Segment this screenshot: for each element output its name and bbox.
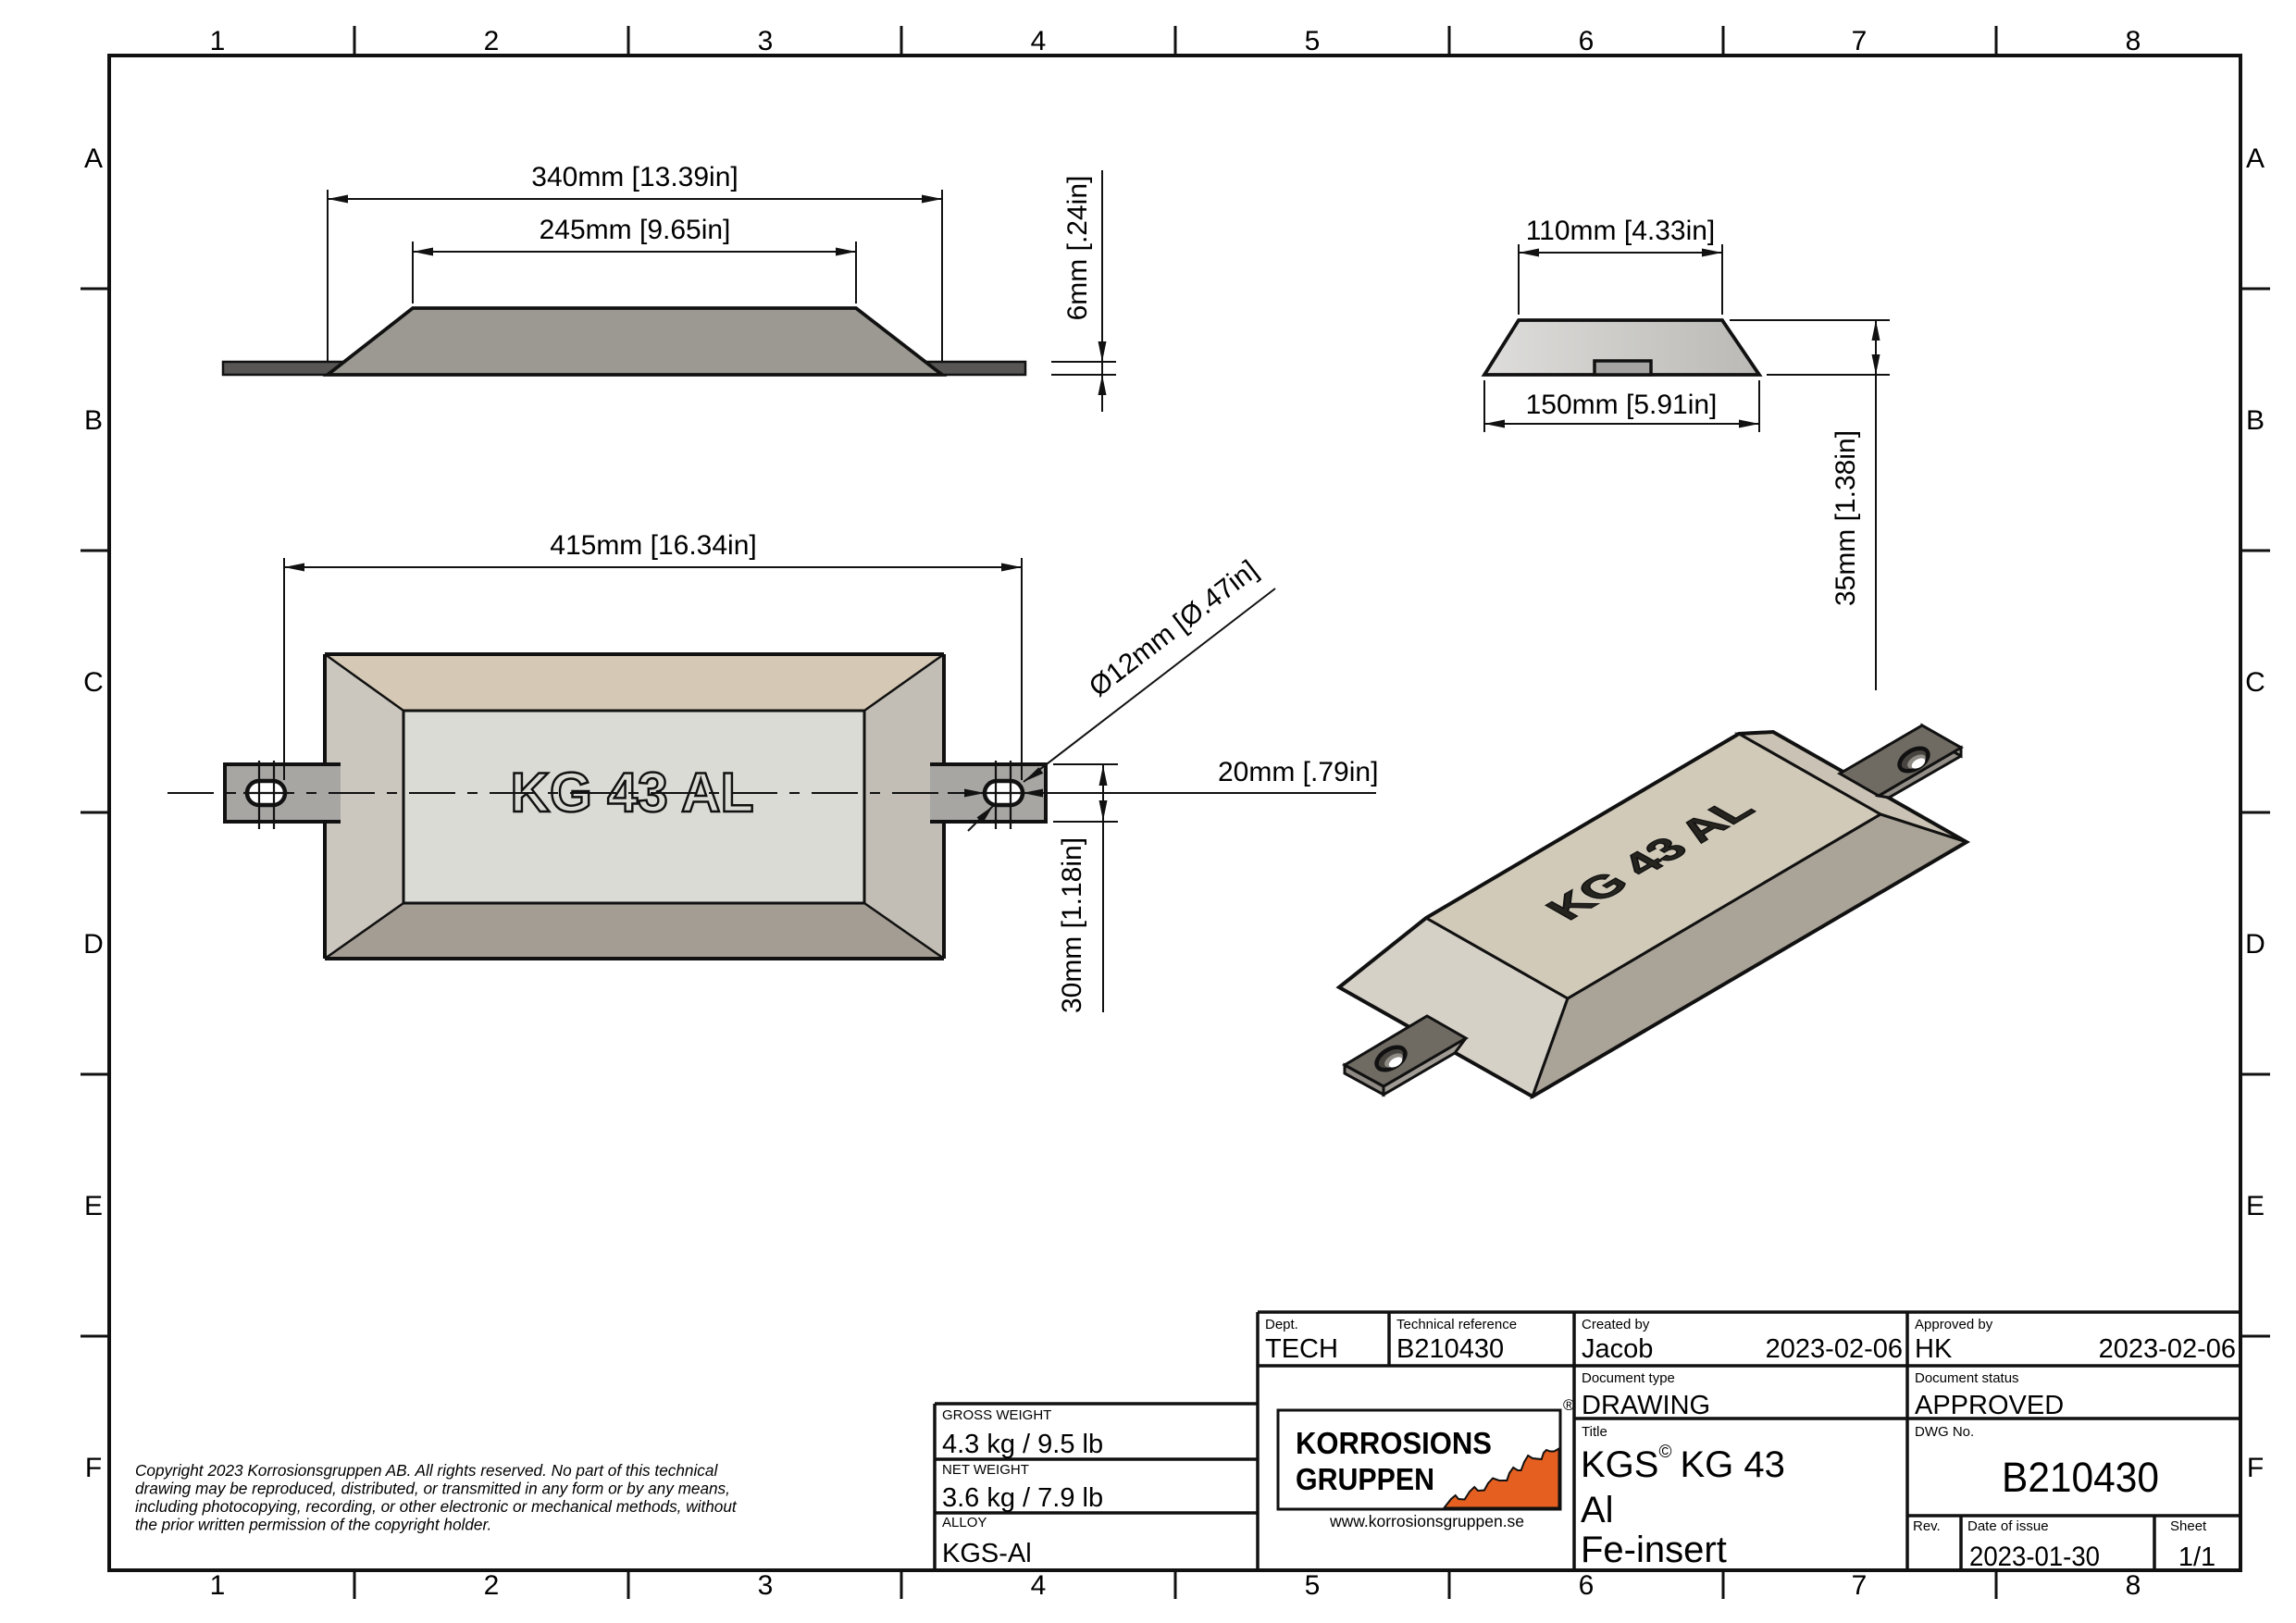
svg-text:2023-02-06: 2023-02-06	[2099, 1334, 2236, 1364]
svg-text:E: E	[84, 1191, 103, 1221]
svg-text:30mm [1.18in]: 30mm [1.18in]	[1057, 837, 1087, 1013]
svg-text:B210430: B210430	[1396, 1334, 1504, 1364]
svg-text:ALLOY: ALLOY	[942, 1515, 987, 1530]
svg-text:3: 3	[758, 1570, 774, 1601]
svg-text:C: C	[2245, 667, 2265, 698]
svg-text:HK: HK	[1915, 1334, 1953, 1364]
svg-text:®: ®	[1563, 1396, 1575, 1414]
svg-text:1/1: 1/1	[2178, 1542, 2215, 1572]
svg-text:Rev.: Rev.	[1913, 1518, 1941, 1534]
svg-text:1: 1	[210, 26, 226, 56]
svg-text:www.korrosionsgruppen.se: www.korrosionsgruppen.se	[1329, 1512, 1524, 1530]
svg-text:KORROSIONS: KORROSIONS	[1296, 1426, 1492, 1460]
svg-text:E: E	[2246, 1191, 2265, 1221]
svg-text:340mm [13.39in]: 340mm [13.39in]	[531, 162, 738, 192]
svg-text:6: 6	[1579, 1570, 1595, 1601]
svg-text:A: A	[84, 143, 103, 174]
svg-text:Title: Title	[1582, 1424, 1607, 1440]
svg-text:35mm [1.38in]: 35mm [1.38in]	[1831, 430, 1861, 606]
svg-text:4: 4	[1031, 1570, 1047, 1601]
svg-text:4.3 kg / 9.5 lb: 4.3 kg / 9.5 lb	[942, 1430, 1103, 1459]
svg-text:KGS-Al: KGS-Al	[942, 1539, 1032, 1568]
svg-text:Document type: Document type	[1582, 1370, 1675, 1386]
svg-text:2023-01-30: 2023-01-30	[1969, 1542, 2100, 1572]
svg-text:7: 7	[1852, 26, 1868, 56]
svg-text:20mm [.79in]: 20mm [.79in]	[1218, 757, 1378, 787]
svg-text:TECH: TECH	[1265, 1334, 1338, 1364]
svg-text:drawing may be reproduced, dis: drawing may be reproduced, distributed, …	[135, 1480, 730, 1498]
svg-text:D: D	[2245, 929, 2265, 960]
svg-text:B210430: B210430	[2002, 1454, 2159, 1501]
svg-text:7: 7	[1852, 1570, 1868, 1601]
svg-text:DRAWING: DRAWING	[1582, 1391, 1710, 1420]
svg-text:APPROVED: APPROVED	[1915, 1391, 2064, 1420]
svg-text:including photocopying, record: including photocopying, recording, or ot…	[135, 1497, 738, 1516]
svg-text:A: A	[2246, 143, 2265, 174]
svg-text:Document status: Document status	[1915, 1370, 2019, 1386]
svg-text:D: D	[83, 929, 104, 960]
svg-text:Dept.: Dept.	[1265, 1317, 1298, 1332]
svg-text:245mm [9.65in]: 245mm [9.65in]	[540, 215, 731, 245]
svg-text:Technical reference: Technical reference	[1396, 1317, 1517, 1332]
svg-text:Sheet: Sheet	[2170, 1518, 2207, 1534]
svg-text:2023-02-06: 2023-02-06	[1766, 1334, 1903, 1364]
svg-text:B: B	[84, 405, 103, 436]
svg-text:2: 2	[484, 1570, 500, 1601]
svg-text:110mm [4.33in]: 110mm [4.33in]	[1526, 216, 1716, 246]
svg-text:3: 3	[758, 26, 774, 56]
svg-text:3.6 kg / 7.9 lb: 3.6 kg / 7.9 lb	[942, 1483, 1103, 1513]
svg-text:Created by: Created by	[1582, 1317, 1650, 1332]
svg-text:4: 4	[1031, 26, 1047, 56]
svg-text:F: F	[2247, 1453, 2264, 1483]
svg-text:DWG No.: DWG No.	[1915, 1424, 1974, 1440]
svg-text:6: 6	[1579, 26, 1595, 56]
svg-text:2: 2	[484, 26, 500, 56]
svg-text:GRUPPEN: GRUPPEN	[1296, 1462, 1434, 1496]
svg-text:8: 8	[2126, 26, 2141, 56]
svg-text:5: 5	[1305, 1570, 1321, 1601]
svg-text:Fe-insert: Fe-insert	[1581, 1530, 1727, 1570]
svg-text:Approved by: Approved by	[1915, 1317, 1993, 1332]
svg-text:Date of issue: Date of issue	[1967, 1518, 2049, 1534]
svg-text:GROSS WEIGHT: GROSS WEIGHT	[942, 1407, 1051, 1423]
svg-text:Jacob: Jacob	[1582, 1334, 1653, 1364]
svg-text:Al: Al	[1581, 1490, 1614, 1530]
svg-text:8: 8	[2126, 1570, 2141, 1601]
svg-text:the prior written permission o: the prior written permission of the copy…	[135, 1516, 491, 1534]
svg-text:6mm [.24in]: 6mm [.24in]	[1062, 176, 1093, 321]
svg-text:Copyright 2023 Korrosionsgrupp: Copyright 2023 Korrosionsgruppen AB. All…	[135, 1461, 718, 1480]
svg-text:5: 5	[1305, 26, 1321, 56]
svg-text:C: C	[83, 667, 104, 698]
svg-text:1: 1	[210, 1570, 226, 1601]
svg-text:415mm [16.34in]: 415mm [16.34in]	[550, 530, 756, 561]
svg-text:150mm [5.91in]: 150mm [5.91in]	[1526, 390, 1718, 420]
svg-text:B: B	[2246, 405, 2265, 436]
svg-text:F: F	[85, 1453, 102, 1483]
svg-text:NET WEIGHT: NET WEIGHT	[942, 1462, 1029, 1478]
svg-text:KGS©KG 43: KGS©KG 43	[1581, 1443, 1785, 1485]
